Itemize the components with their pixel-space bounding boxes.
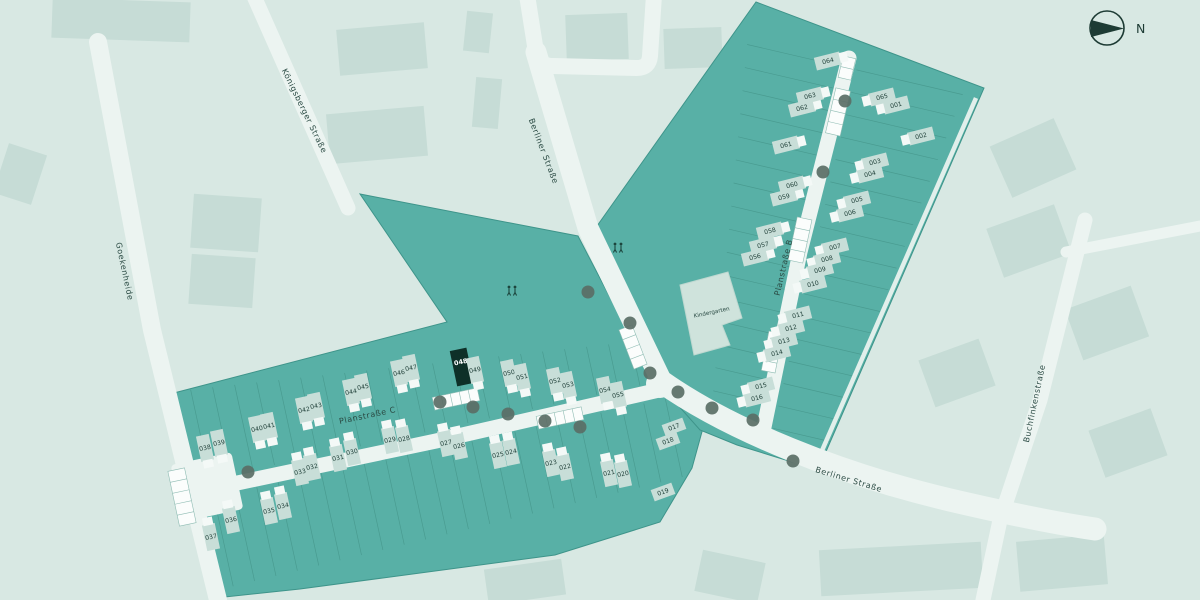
tree-icon [817, 166, 830, 179]
tree-icon [434, 396, 447, 409]
tree-icon [582, 286, 595, 299]
compass-north-label: N [1136, 21, 1145, 36]
site-plan-map: Kindergarten 001002003004005006007008009… [0, 0, 1200, 600]
tree-icon [787, 455, 800, 468]
tree-icon [574, 421, 587, 434]
tree-icon [624, 317, 637, 330]
tree-icon [839, 95, 852, 108]
tree-icon [672, 386, 685, 399]
tree-icon [467, 401, 480, 414]
tree-icon [644, 367, 657, 380]
tree-icon [747, 414, 760, 427]
tree-icon [242, 466, 255, 479]
tree-icon [539, 415, 552, 428]
tree-icon [706, 402, 719, 415]
site-plan: Kindergarten 001002003004005006007008009… [0, 0, 1200, 600]
tree-icon [502, 408, 515, 421]
